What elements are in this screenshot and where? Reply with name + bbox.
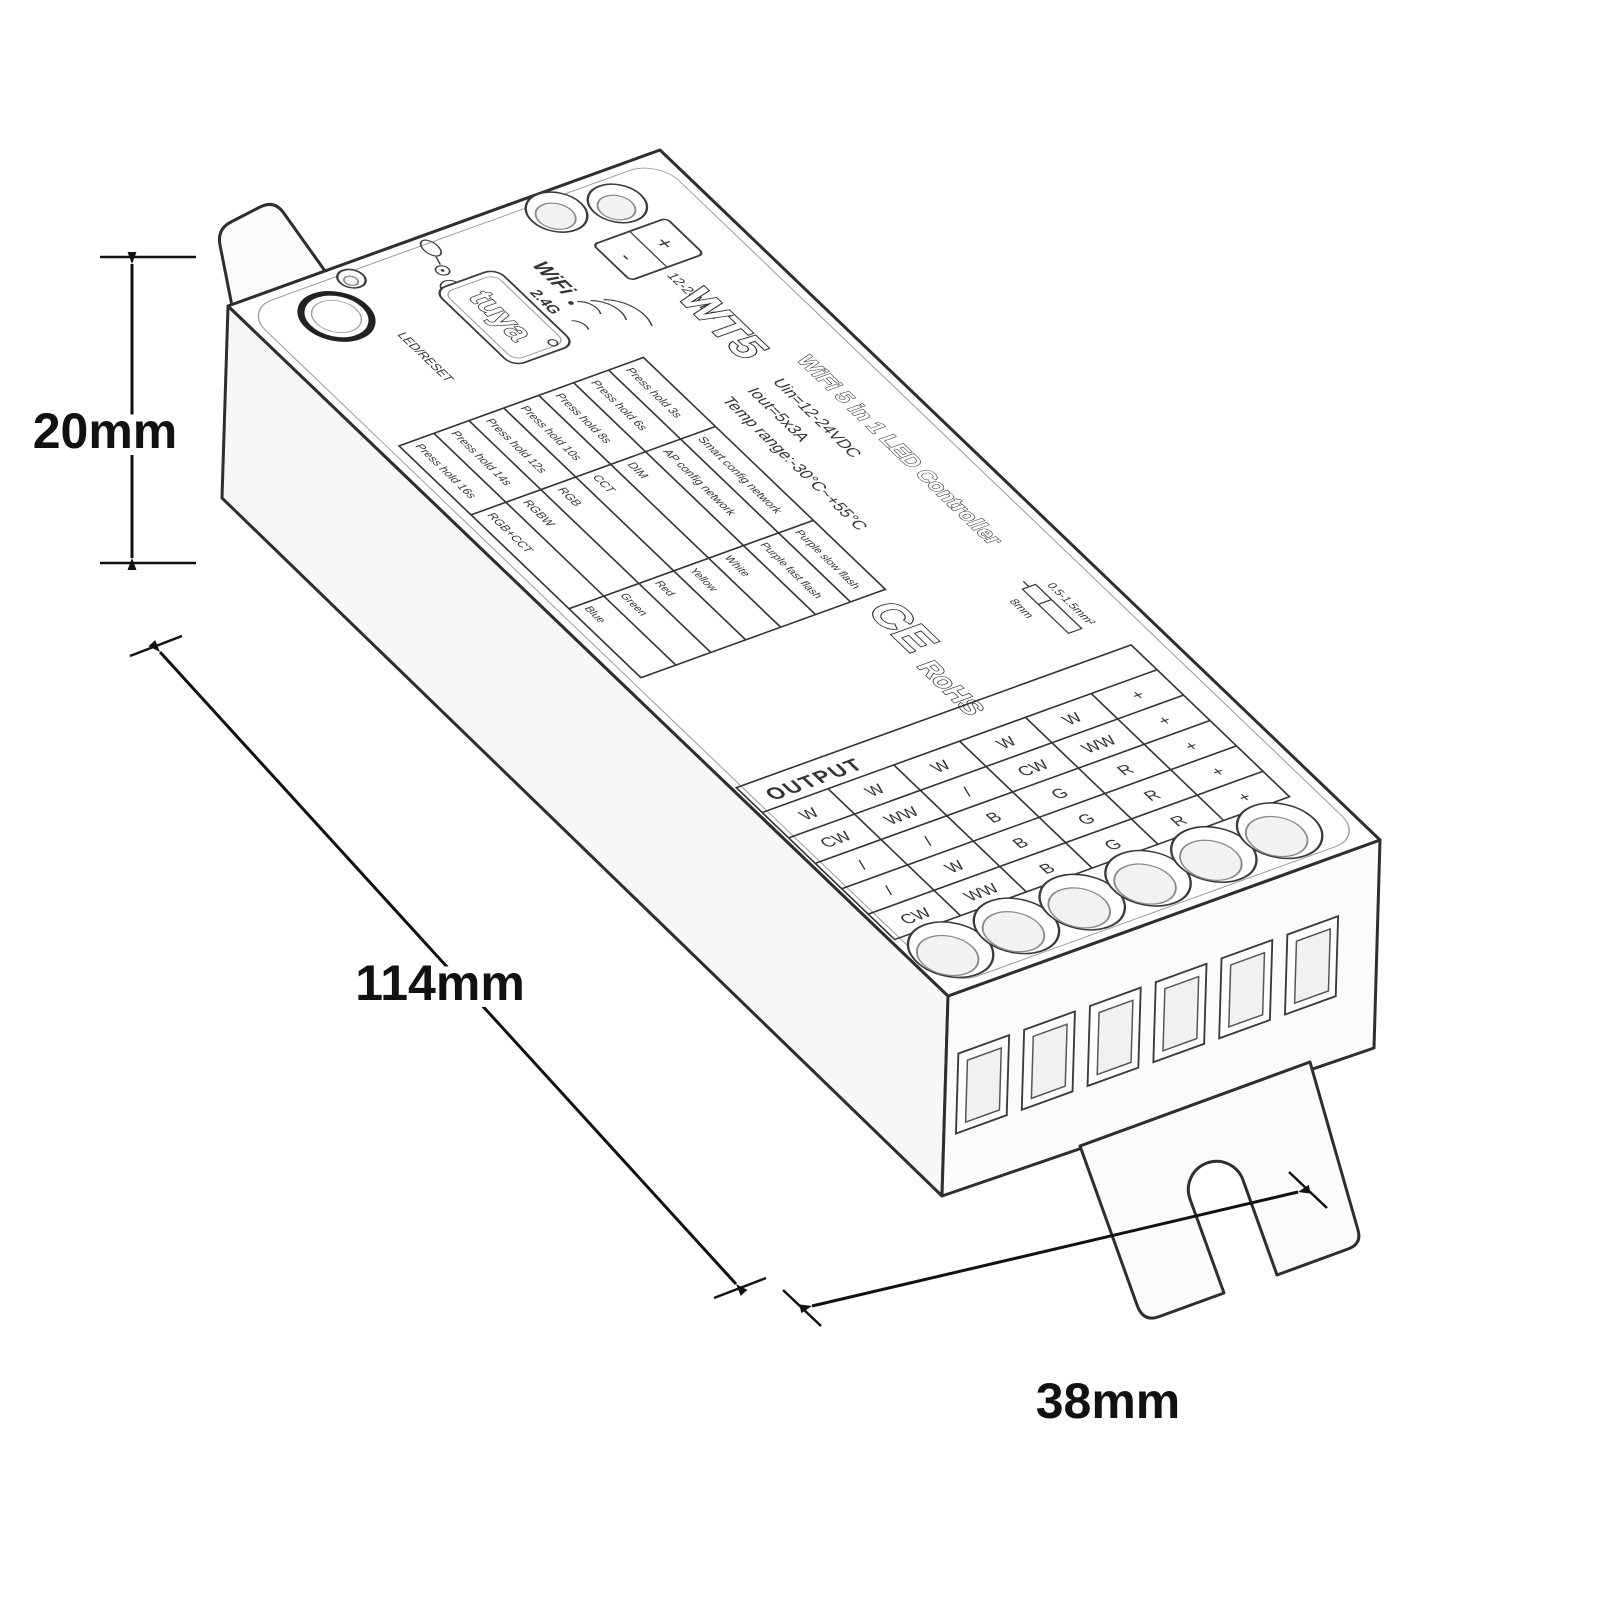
dim-length-label: 114mm <box>355 955 525 1011</box>
dim-height-label: 20mm <box>33 403 178 459</box>
dimension-20mm: 20mm <box>33 257 196 563</box>
led-controller-technical-drawing: + - 12-24VDC LED/RESET tuya WiFi <box>0 0 1600 1600</box>
dim-depth-label: 38mm <box>1036 1373 1181 1429</box>
product-diagram-page: + - 12-24VDC LED/RESET tuya WiFi <box>0 0 1600 1600</box>
dimension-38mm: 38mm <box>783 1172 1327 1429</box>
